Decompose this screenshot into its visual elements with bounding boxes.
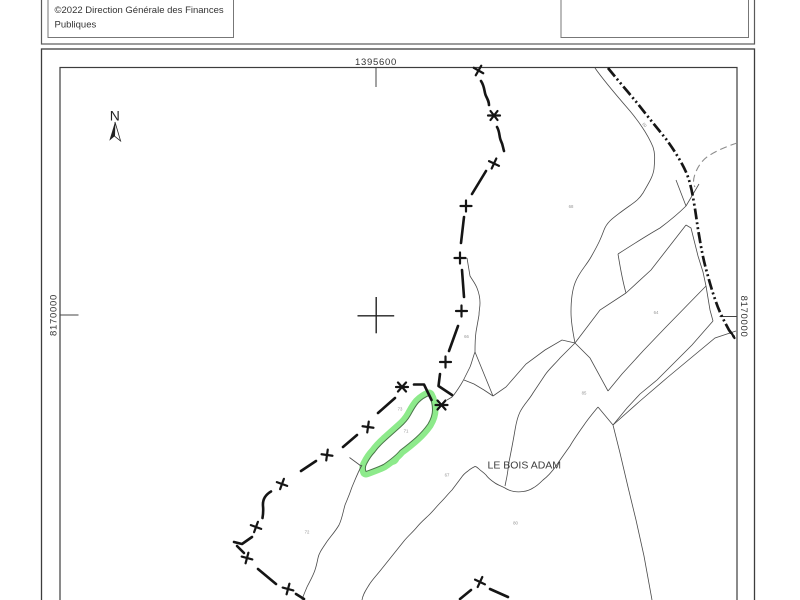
svg-text:N: N: [110, 108, 120, 124]
svg-text:©2022 Direction Générale des F: ©2022 Direction Générale des Finances: [55, 5, 224, 16]
svg-text:67: 67: [445, 473, 450, 478]
svg-text:64: 64: [654, 310, 659, 315]
svg-text:80: 80: [513, 521, 518, 526]
svg-text:85: 85: [582, 391, 587, 396]
svg-text:LE BOIS ADAM: LE BOIS ADAM: [488, 460, 562, 472]
svg-text:68: 68: [569, 204, 574, 209]
svg-text:71: 71: [404, 429, 409, 434]
svg-text:8170000: 8170000: [49, 294, 60, 336]
svg-text:Publiques: Publiques: [55, 20, 97, 31]
svg-text:8170000: 8170000: [738, 296, 749, 338]
svg-text:66: 66: [464, 334, 469, 339]
svg-text:73: 73: [398, 407, 403, 412]
svg-text:1395600: 1395600: [355, 57, 397, 68]
svg-text:72: 72: [305, 530, 310, 535]
